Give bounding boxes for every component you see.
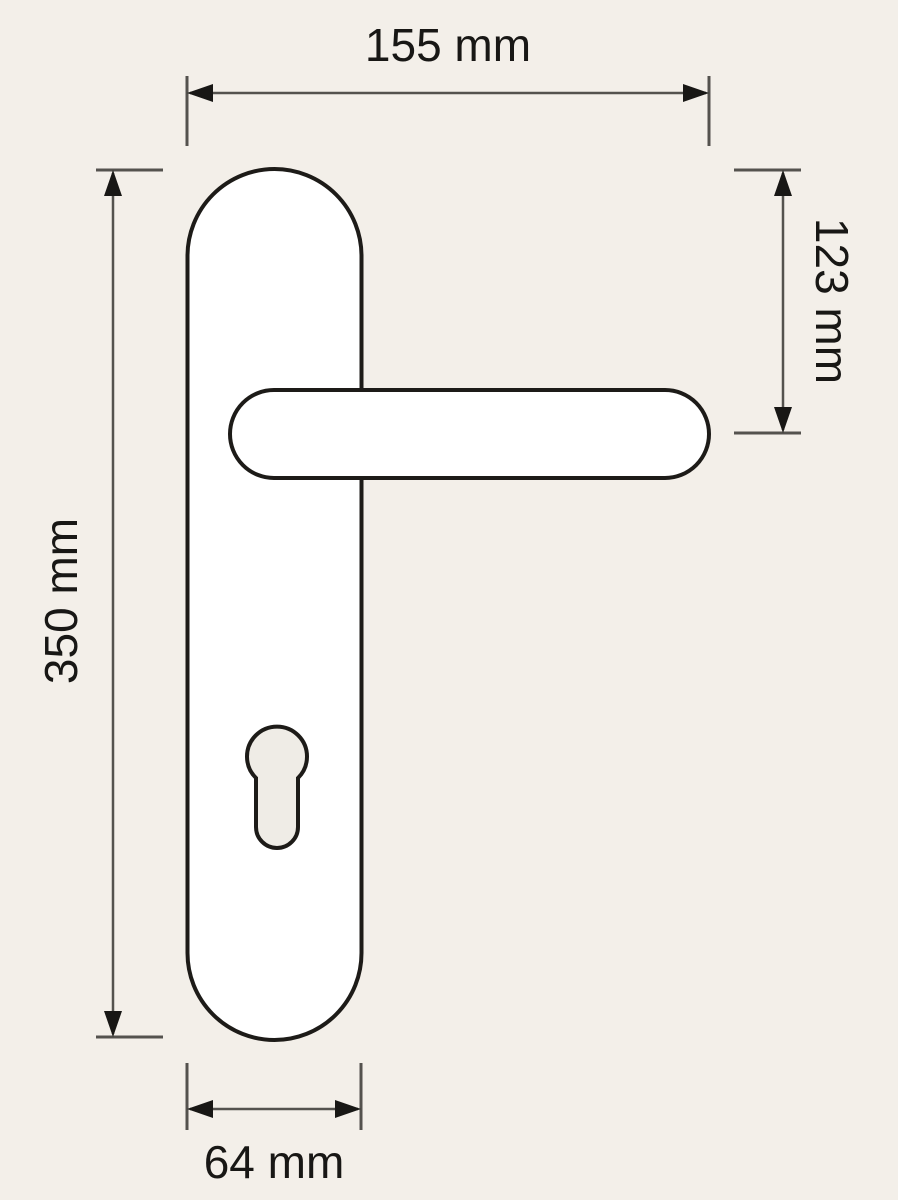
lever-handle-shape <box>230 390 709 478</box>
dimension-plate-height: 350 mm <box>35 170 163 1037</box>
arrowhead-up-icon <box>104 170 122 196</box>
dimension-label-total-width: 155 mm <box>365 19 531 71</box>
dimension-plate-width: 64 mm <box>187 1063 361 1188</box>
arrowhead-down-icon <box>104 1011 122 1037</box>
dimension-label-top-to-handle-axis: 123 mm <box>806 218 858 384</box>
keyhole-cutout <box>247 727 307 848</box>
arrowhead-down-icon <box>774 407 792 433</box>
arrowhead-right-icon <box>683 84 709 102</box>
dimension-top-to-handle-axis: 123 mm <box>734 170 858 433</box>
arrowhead-right-icon <box>335 1100 361 1118</box>
door-handle-shapes <box>188 169 710 1040</box>
arrowhead-left-icon <box>187 84 213 102</box>
backplate-shape <box>188 169 362 1040</box>
door-handle-dimension-diagram: 155 mm 123 mm 350 mm 64 mm <box>0 0 898 1200</box>
arrowhead-up-icon <box>774 170 792 196</box>
arrowhead-left-icon <box>187 1100 213 1118</box>
dimension-label-plate-height: 350 mm <box>35 518 87 684</box>
technical-drawing-page: 155 mm 123 mm 350 mm 64 mm <box>0 0 898 1200</box>
dimension-label-plate-width: 64 mm <box>204 1136 345 1188</box>
dimension-total-width: 155 mm <box>187 19 709 146</box>
